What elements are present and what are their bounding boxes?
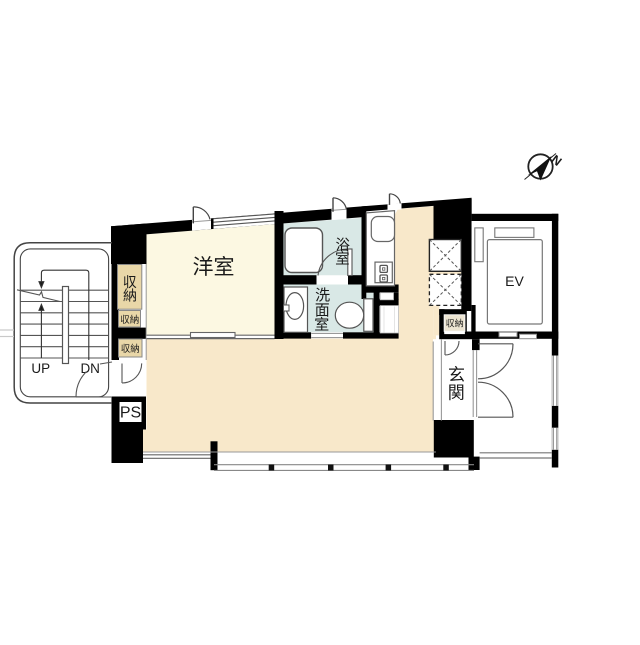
svg-text:収納: 収納 [120, 314, 139, 326]
svg-text:玄: 玄 [448, 366, 465, 385]
svg-text:EV: EV [505, 273, 524, 289]
svg-text:収納: 収納 [121, 343, 140, 355]
svg-text:室: 室 [335, 251, 350, 268]
svg-text:室: 室 [314, 317, 329, 334]
svg-text:洋室: 洋室 [193, 256, 235, 279]
svg-text:収納: 収納 [446, 318, 464, 329]
svg-text:関: 関 [448, 384, 465, 403]
svg-text:DN: DN [80, 361, 100, 376]
svg-text:PS: PS [120, 405, 141, 422]
svg-text:納: 納 [123, 288, 137, 304]
svg-text:UP: UP [31, 361, 50, 376]
